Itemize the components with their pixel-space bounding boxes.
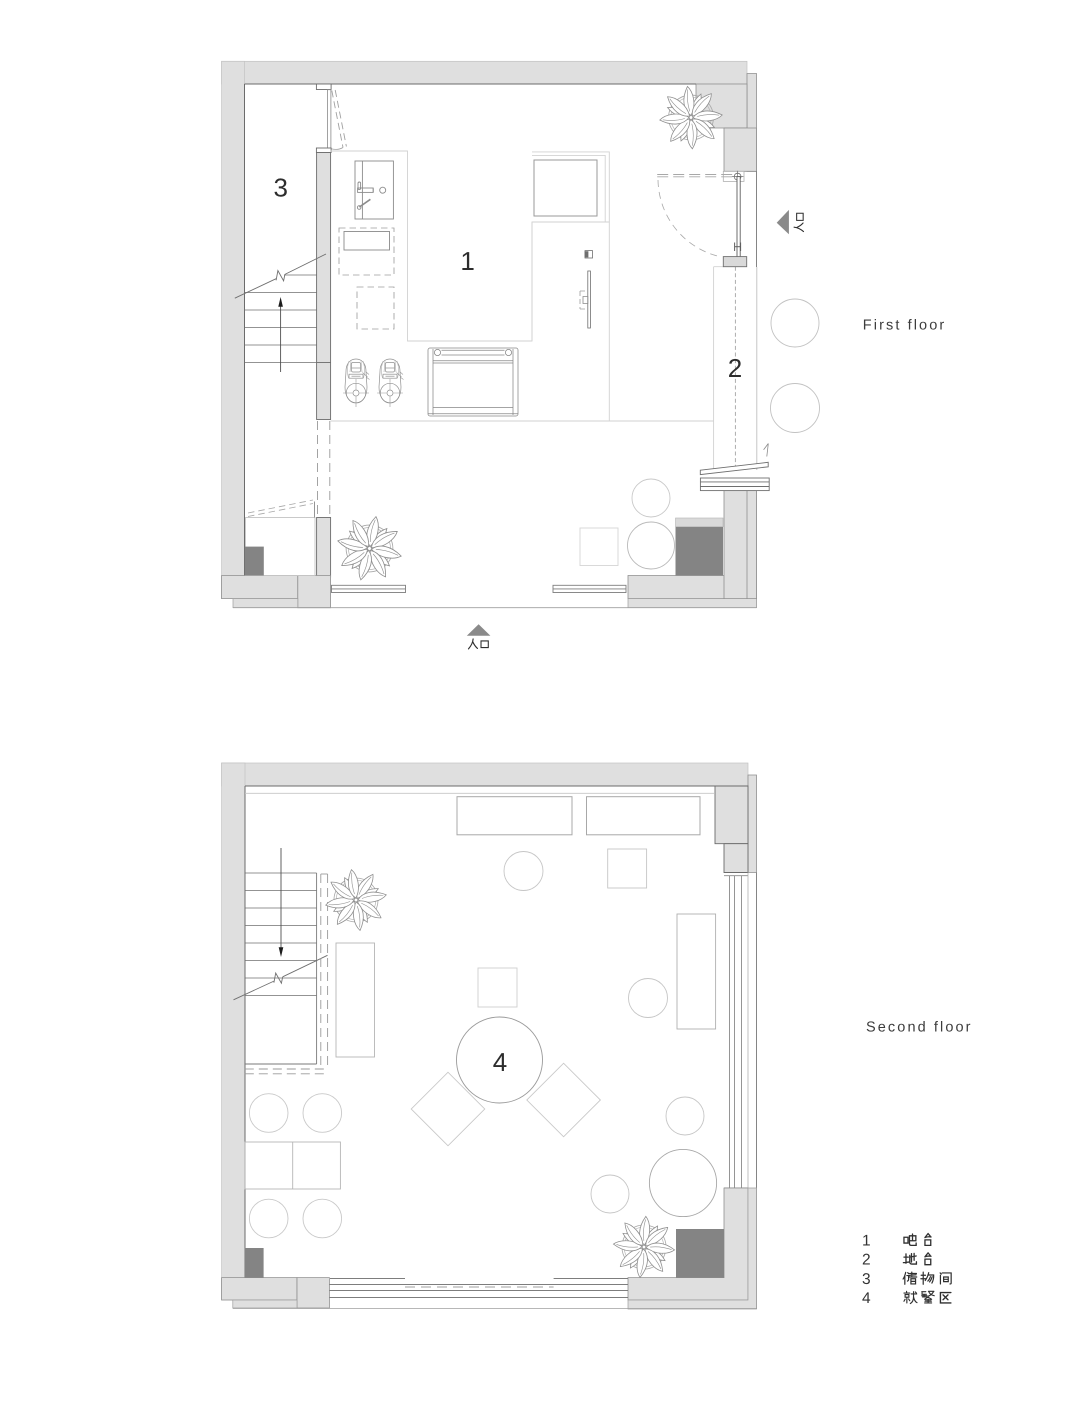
svg-text:1: 1: [862, 1232, 871, 1249]
svg-text:3: 3: [862, 1271, 871, 1288]
svg-text:4: 4: [493, 1047, 507, 1077]
svg-text:2: 2: [728, 353, 742, 383]
svg-text:Second floor: Second floor: [866, 1020, 973, 1036]
svg-text:1: 1: [460, 246, 474, 276]
svg-text:First floor: First floor: [863, 317, 947, 333]
svg-text:3: 3: [273, 173, 287, 203]
svg-text:4: 4: [862, 1290, 871, 1307]
svg-text:2: 2: [862, 1252, 871, 1269]
